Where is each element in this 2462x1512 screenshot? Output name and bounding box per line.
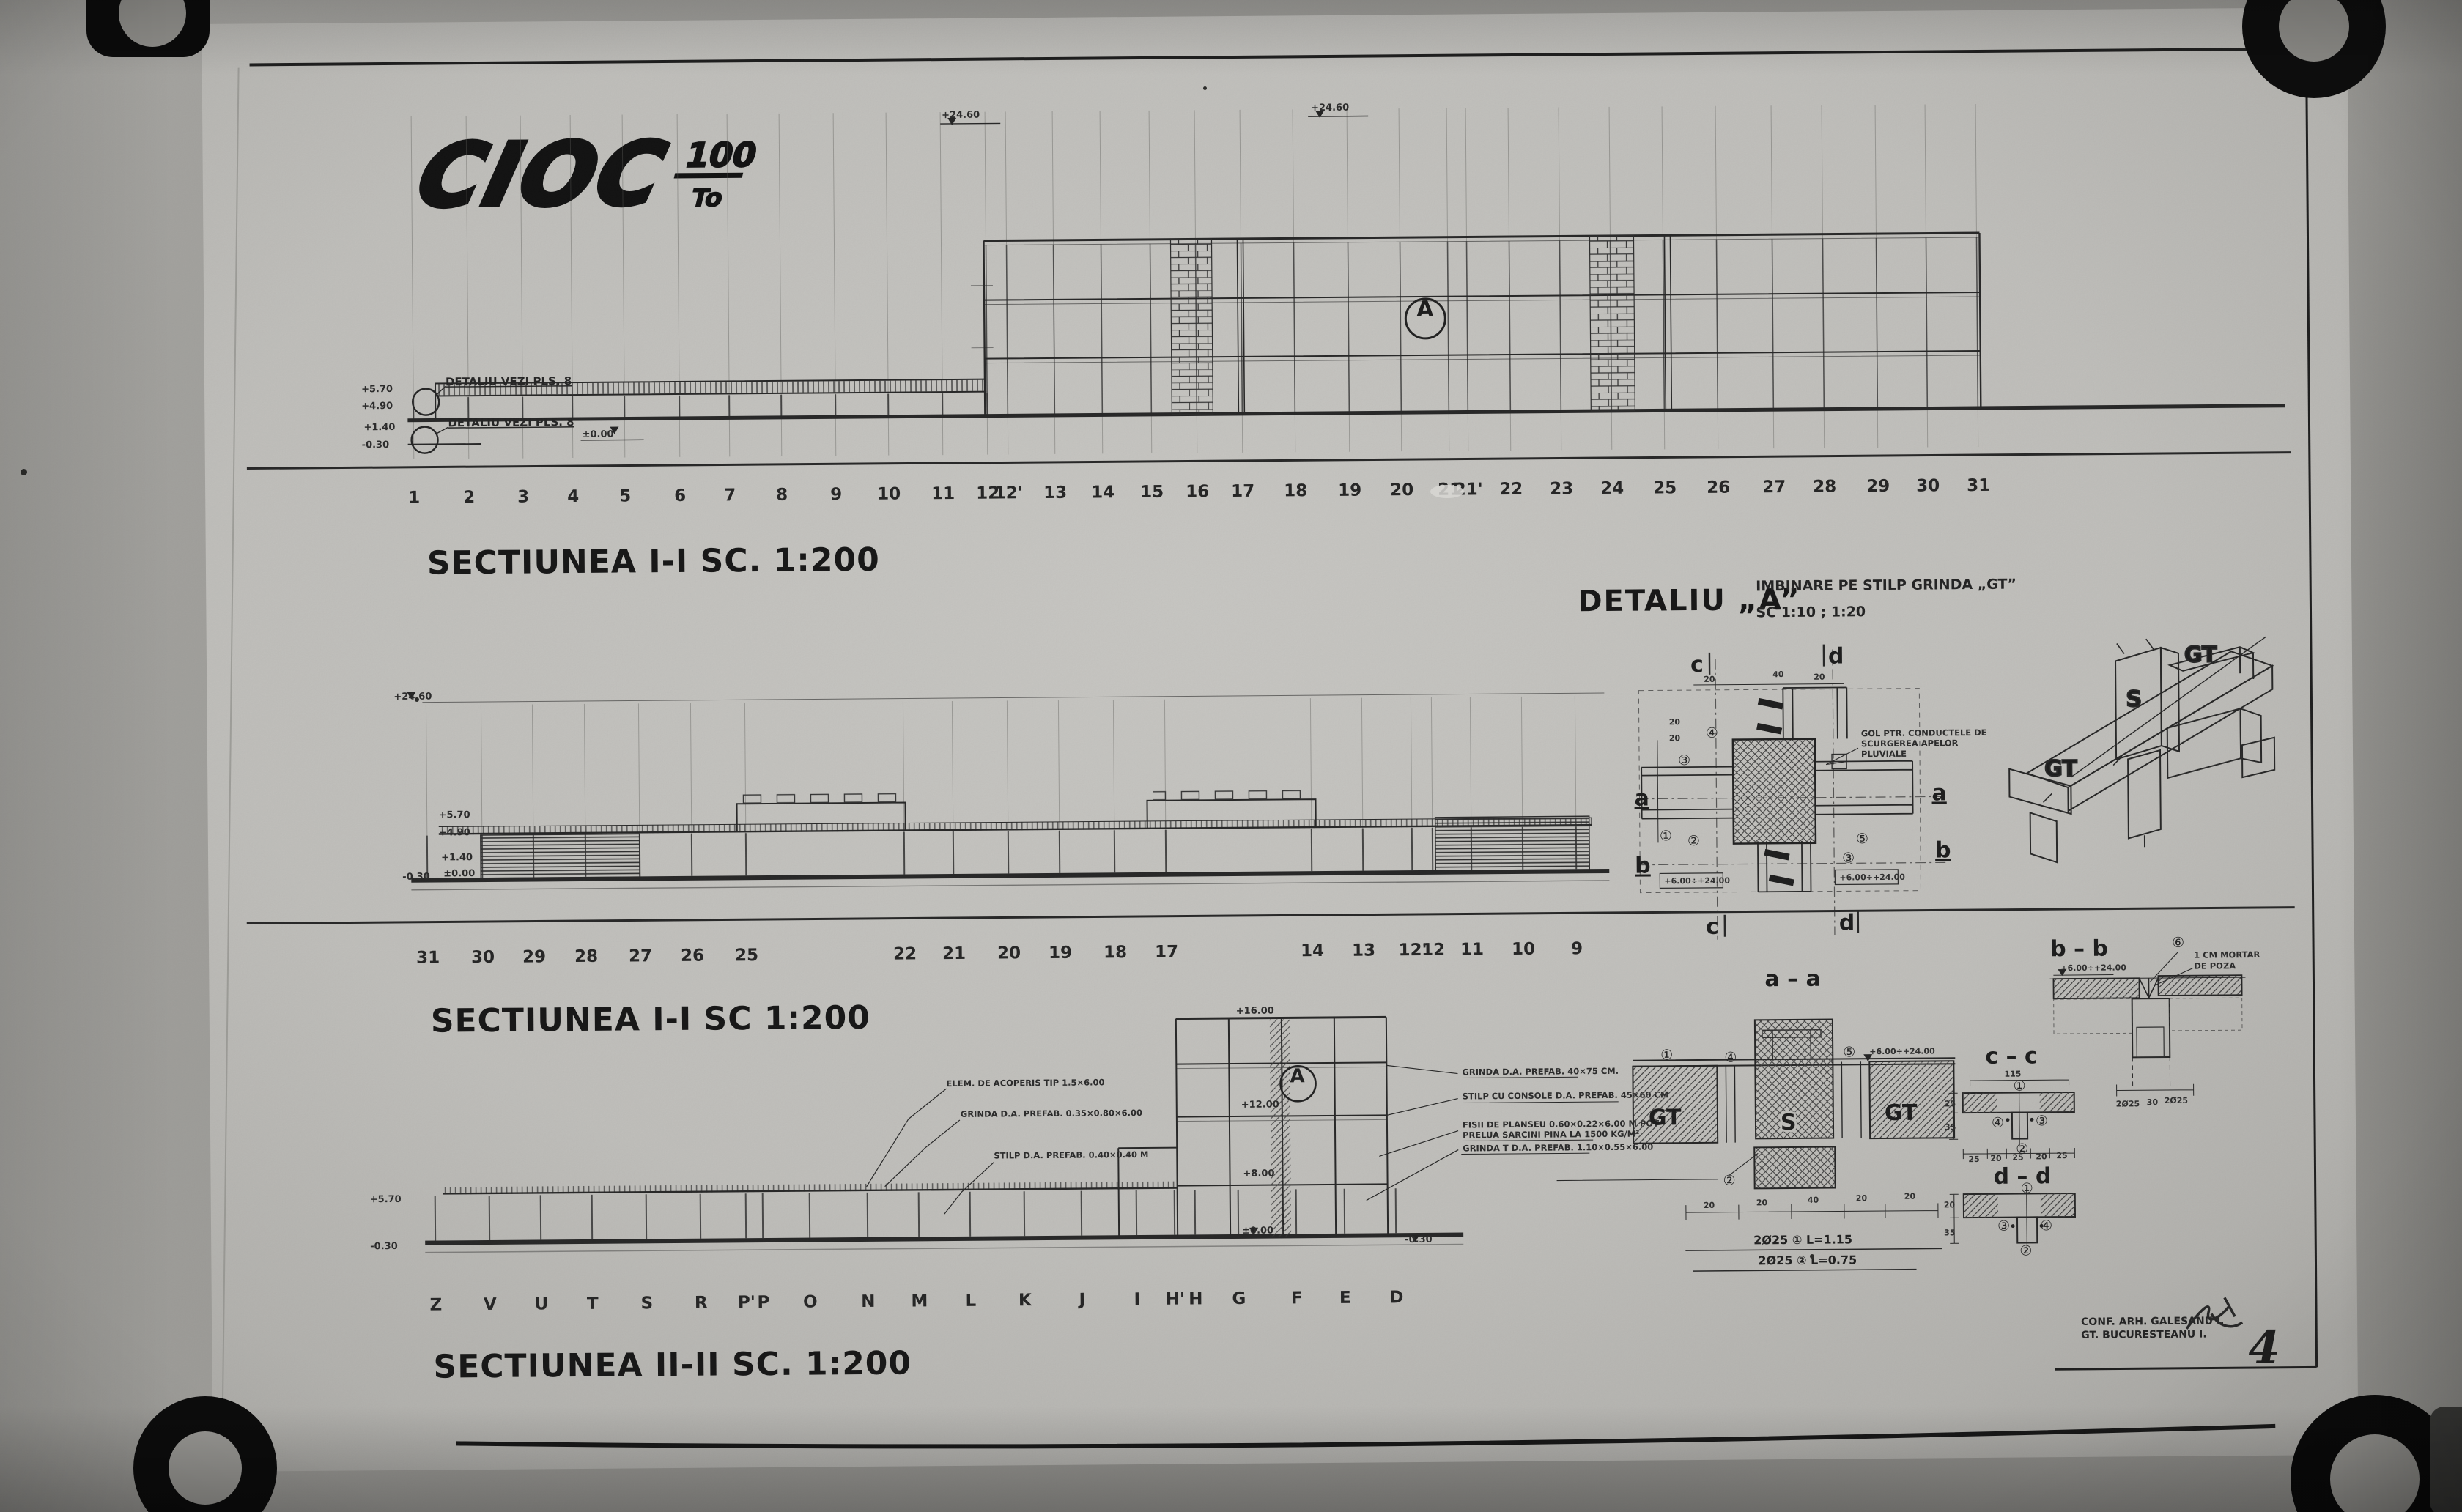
- dust-speck: [21, 469, 27, 475]
- drawing-svg: CIOC 100 To A DETALIU VEZI PLS. 8: [0, 0, 2462, 1512]
- dust-speck: [415, 697, 419, 702]
- whiteout-smudge: [1430, 485, 1464, 498]
- photo-of-drawing: CIOC 100 To A DETALIU VEZI PLS. 8: [0, 0, 2462, 1512]
- film-grain: [0, 0, 2462, 1512]
- dust-speck: [1203, 86, 1207, 90]
- dust-speck: [1810, 1254, 1814, 1259]
- corner-shadow-bottom-right: [2430, 1407, 2462, 1512]
